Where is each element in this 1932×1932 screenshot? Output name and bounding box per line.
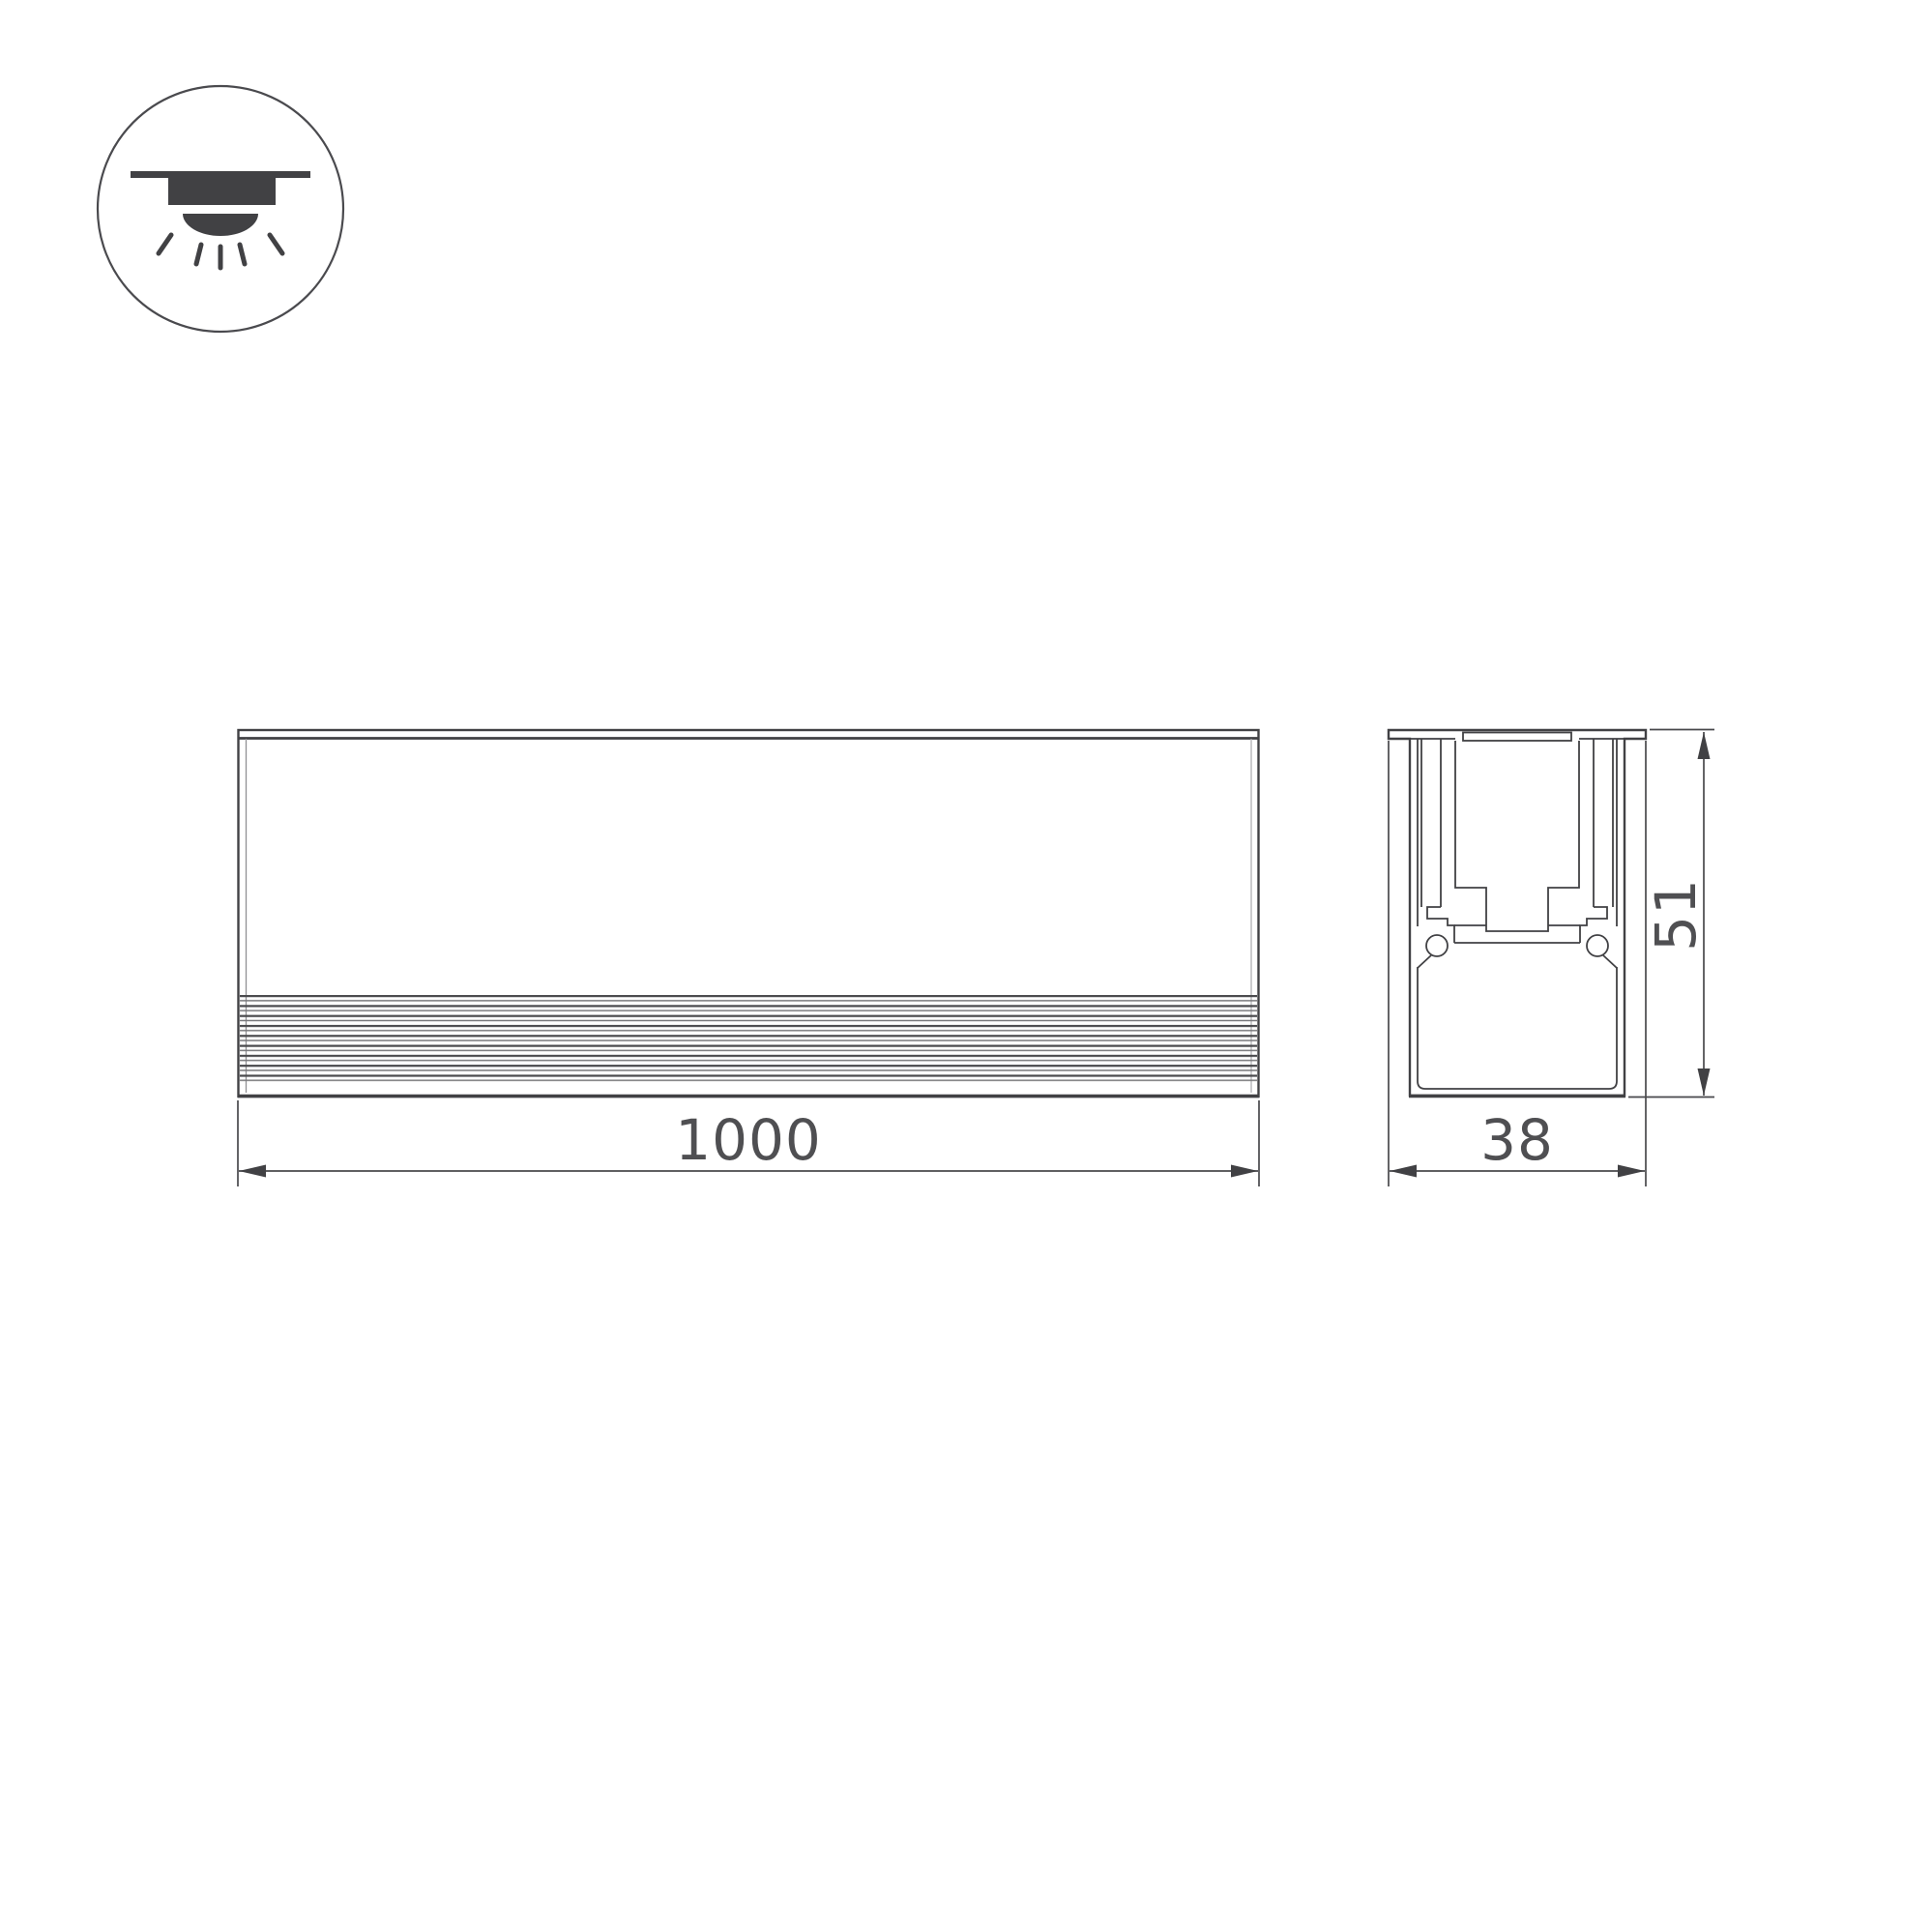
- section-clip-notch-right: [1587, 935, 1608, 956]
- section-center-cap: [1463, 733, 1571, 742]
- section-clip-notch-left: [1426, 935, 1448, 956]
- section-chamfer-right: [1603, 955, 1617, 968]
- icon-light-rays: [159, 235, 282, 268]
- icon-recessed-housing: [168, 178, 276, 205]
- dimension-height-arrow-bottom: [1698, 1068, 1711, 1096]
- recessed-downlight-icon: [98, 86, 343, 332]
- dimension-width: 38: [1389, 741, 1646, 1186]
- section-chamfer-left: [1418, 955, 1431, 968]
- icon-ceiling-bar: [131, 171, 310, 178]
- front-view: [238, 730, 1259, 1097]
- section-channel-floor: [1427, 907, 1607, 943]
- dimension-height: 51: [1628, 730, 1714, 1098]
- dimension-length: 1000: [238, 1100, 1259, 1186]
- front-view-ribbed-band: [240, 995, 1257, 1084]
- dimension-width-arrow-left: [1390, 1165, 1417, 1178]
- dimension-length-arrow-right: [1231, 1165, 1258, 1178]
- section-upper-walls: [1418, 739, 1617, 926]
- profile-dimension-drawing: 1000 38 51: [0, 0, 1932, 1932]
- dimension-height-label: 51: [1643, 878, 1709, 951]
- dimension-height-arrow-top: [1698, 732, 1711, 759]
- section-view: [1389, 730, 1646, 1097]
- dimension-length-arrow-left: [239, 1165, 266, 1178]
- section-lower-cavity: [1418, 967, 1617, 1089]
- icon-lamp-dome: [183, 214, 258, 236]
- section-upper-channel: [1455, 741, 1579, 931]
- dimension-length-label: 1000: [675, 1107, 822, 1173]
- technical-drawing-page: 1000 38 51: [0, 0, 1932, 1932]
- dimension-width-arrow-right: [1618, 1165, 1645, 1178]
- dimension-width-label: 38: [1480, 1107, 1554, 1173]
- icon-circle-border: [98, 86, 343, 332]
